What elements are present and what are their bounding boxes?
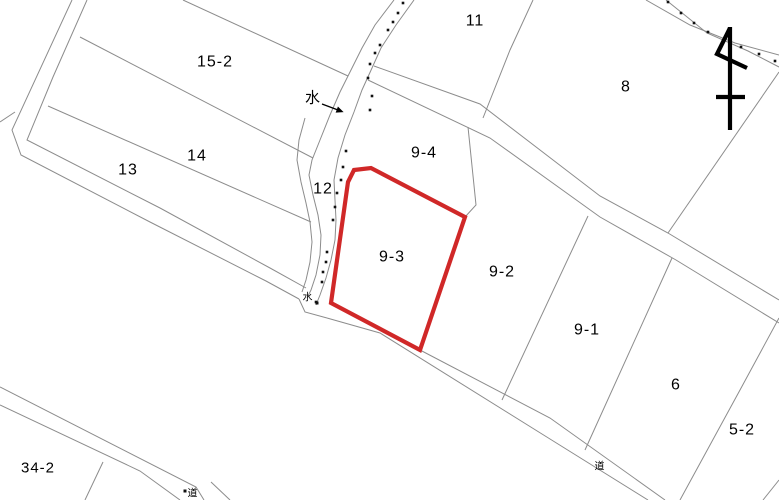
parcel-label-5-2: 5-2 — [729, 422, 755, 439]
stream-dot — [326, 251, 329, 254]
parcel-label-6: 6 — [671, 377, 681, 394]
parcel-label-14: 14 — [187, 148, 207, 165]
parcel-label-34-2: 34-2 — [21, 460, 55, 477]
stream-dot — [392, 21, 395, 24]
stream-dot — [707, 31, 710, 34]
stream-dot — [342, 166, 345, 169]
stream-dot — [345, 150, 348, 153]
stream-dot — [402, 2, 405, 5]
cadastral-map-canvas: 15-2141312119-49-39-29-1865-234-2水水道道 — [0, 0, 779, 500]
stream-dot — [334, 206, 337, 209]
stream-dot — [693, 22, 696, 25]
parcel-label-15-2: 15-2 — [197, 54, 233, 71]
parcel-label-9-3: 9-3 — [379, 249, 405, 266]
stream-dot — [369, 109, 372, 112]
stream-dot — [371, 95, 374, 98]
road-label-southwest: 道 — [188, 487, 199, 500]
road-label-southwest-dot — [184, 490, 187, 493]
water-label-upper: 水 — [305, 90, 321, 107]
stream-dot — [336, 192, 339, 195]
stream-dot — [680, 12, 683, 15]
water-label-junction-dot — [316, 302, 319, 305]
parcel-label-11: 11 — [466, 13, 485, 30]
stream-dot — [321, 281, 324, 284]
stream-dot — [322, 271, 325, 274]
cadastral-map: 15-2141312119-49-39-29-1865-234-2水水道道 — [0, 0, 779, 500]
stream-dot — [774, 60, 777, 63]
stream-dot — [758, 53, 761, 56]
stream-dot — [379, 44, 382, 47]
stream-dot — [374, 52, 377, 55]
water-label-junction: 水 — [303, 292, 314, 304]
parcel-label-8: 8 — [621, 79, 631, 96]
stream-dot — [340, 179, 343, 182]
parcel-label-9-4: 9-4 — [411, 145, 437, 162]
stream-dot — [397, 12, 400, 15]
stream-dot — [369, 63, 372, 66]
parcel-label-9-2: 9-2 — [489, 264, 515, 281]
parcel-label-12: 12 — [313, 181, 333, 198]
road-label-southeast: 道 — [595, 460, 606, 473]
stream-dot — [667, 1, 670, 4]
stream-dot — [325, 261, 328, 264]
stream-dot — [387, 29, 390, 32]
parcel-label-9-1: 9-1 — [574, 322, 600, 339]
stream-dot — [740, 46, 743, 49]
parcel-label-13: 13 — [118, 162, 138, 179]
stream-dot — [332, 219, 335, 222]
stream-dot — [367, 77, 370, 80]
